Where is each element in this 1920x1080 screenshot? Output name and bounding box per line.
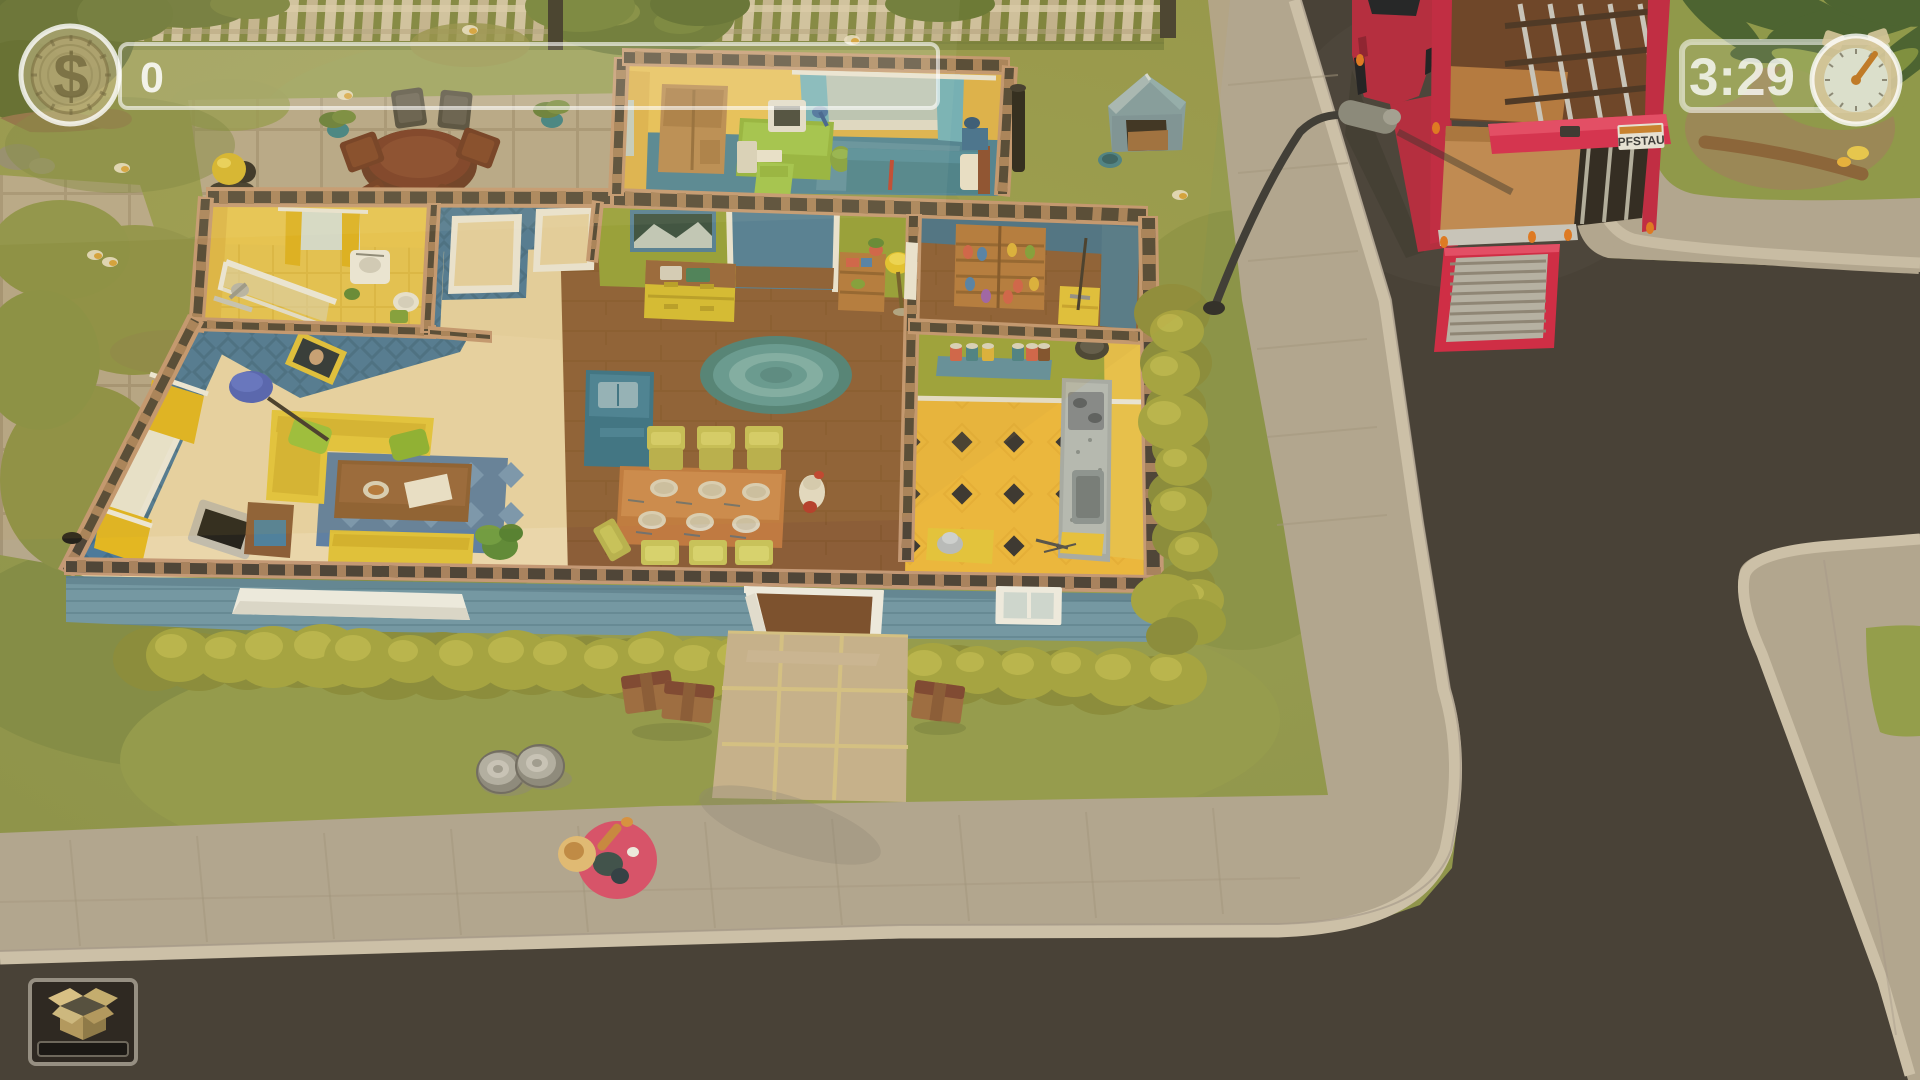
svg-text:0: 0: [140, 54, 164, 102]
svg-text:$: $: [53, 40, 89, 112]
svg-text:3:29: 3:29: [1689, 48, 1795, 107]
